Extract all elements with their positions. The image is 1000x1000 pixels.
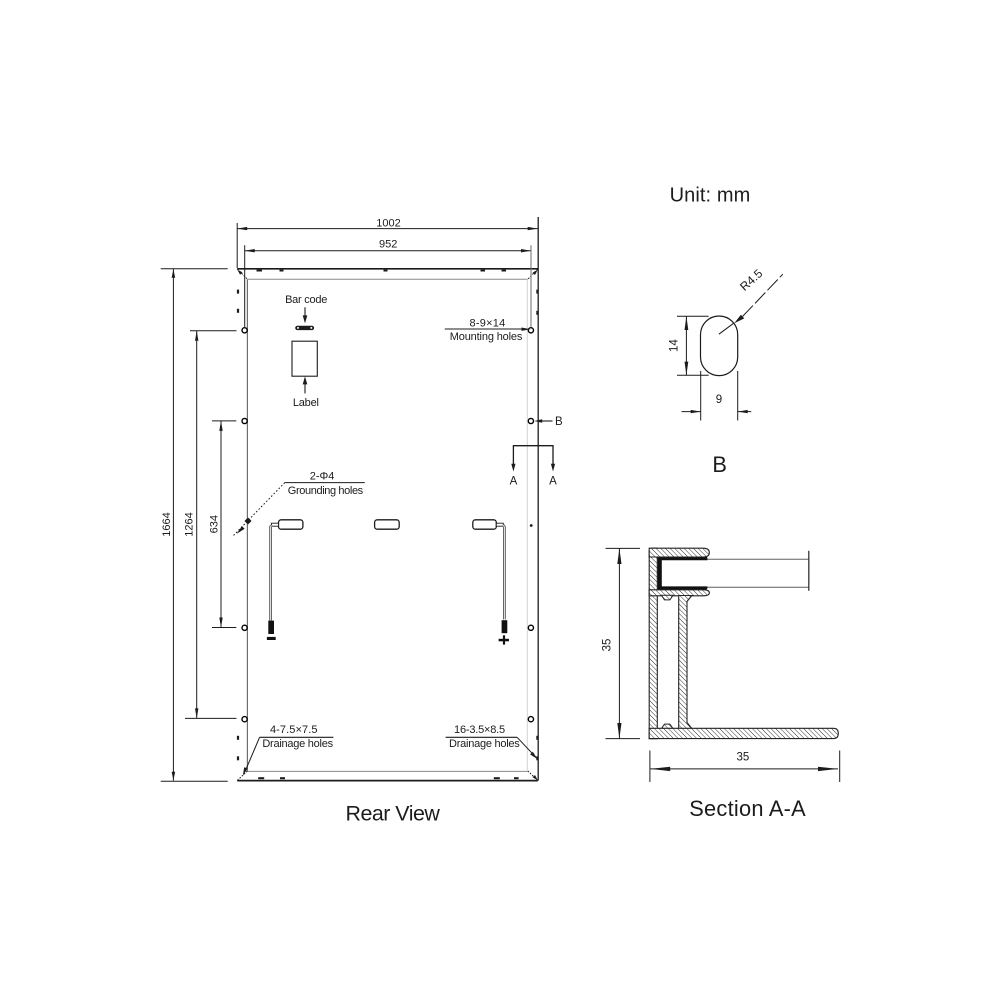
svg-text:1664: 1664: [161, 512, 173, 536]
svg-text:1002: 1002: [376, 218, 400, 230]
svg-text:Label: Label: [293, 397, 319, 409]
svg-text:B: B: [712, 452, 727, 477]
svg-text:35: 35: [737, 751, 750, 763]
svg-text:16-3.5×8.5: 16-3.5×8.5: [454, 724, 505, 736]
svg-text:Mounting holes: Mounting holes: [450, 331, 523, 343]
svg-text:8-9×14: 8-9×14: [470, 317, 506, 329]
svg-text:1264: 1264: [183, 512, 195, 536]
svg-text:9: 9: [716, 394, 722, 406]
svg-text:14: 14: [668, 339, 680, 352]
svg-text:Unit: mm: Unit: mm: [670, 184, 751, 206]
svg-text:A: A: [510, 475, 518, 487]
svg-text:35: 35: [601, 639, 613, 652]
svg-text:A: A: [549, 475, 557, 487]
svg-text:Grounding holes: Grounding holes: [288, 485, 364, 497]
svg-text:R4.5: R4.5: [737, 266, 765, 294]
svg-text:Bar code: Bar code: [285, 294, 327, 306]
svg-text:Section A-A: Section A-A: [689, 796, 806, 821]
svg-text:4-7.5×7.5: 4-7.5×7.5: [270, 724, 318, 736]
svg-text:B: B: [555, 416, 563, 428]
svg-text:Drainage holes: Drainage holes: [262, 738, 333, 750]
svg-text:2-Φ4: 2-Φ4: [310, 471, 335, 483]
svg-text:634: 634: [208, 515, 220, 533]
svg-text:952: 952: [379, 239, 397, 251]
svg-text:Drainage holes: Drainage holes: [449, 738, 520, 750]
svg-text:Rear View: Rear View: [346, 801, 441, 825]
